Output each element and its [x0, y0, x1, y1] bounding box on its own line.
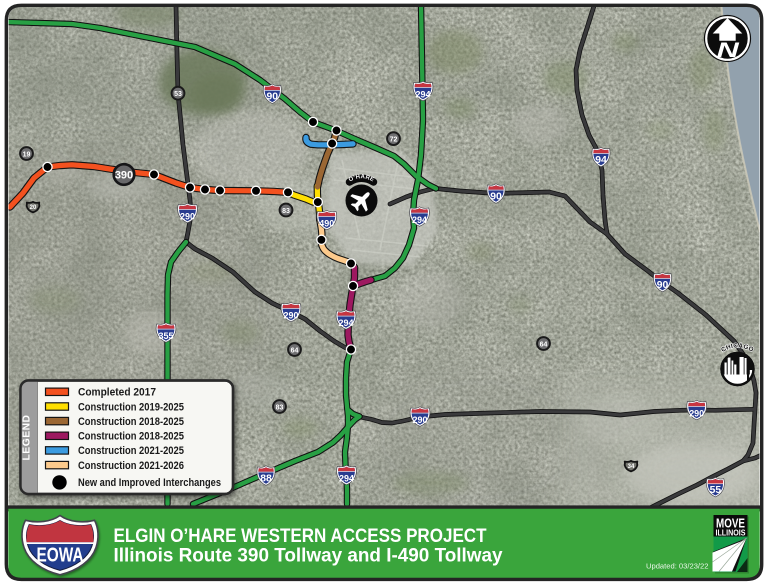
- svg-text:290: 290: [284, 309, 299, 320]
- svg-text:90: 90: [657, 280, 669, 291]
- svg-text:ILLINOIS: ILLINOIS: [716, 527, 746, 537]
- svg-text:90: 90: [490, 191, 502, 202]
- svg-text:294: 294: [416, 88, 432, 99]
- svg-text:88: 88: [260, 473, 272, 484]
- svg-text:New and Improved Interchanges: New and Improved Interchanges: [78, 477, 221, 489]
- svg-text:83: 83: [282, 208, 290, 215]
- svg-text:294: 294: [339, 472, 355, 483]
- svg-text:ELGIN O’HARE WESTERN ACCESS PR: ELGIN O’HARE WESTERN ACCESS PROJECT: [114, 526, 487, 547]
- svg-text:355: 355: [159, 330, 174, 341]
- svg-text:64: 64: [291, 347, 299, 354]
- svg-text:Completed 2017: Completed 2017: [78, 387, 156, 399]
- svg-text:290: 290: [180, 210, 195, 221]
- svg-text:LEGEND: LEGEND: [22, 415, 33, 461]
- svg-text:19: 19: [23, 151, 31, 158]
- svg-text:290: 290: [689, 407, 704, 418]
- svg-text:94: 94: [595, 155, 607, 166]
- svg-text:83: 83: [276, 404, 284, 411]
- svg-text:490: 490: [319, 217, 334, 228]
- svg-text:Construction 2021-2026: Construction 2021-2026: [78, 460, 184, 472]
- svg-text:294: 294: [412, 214, 428, 225]
- svg-text:290: 290: [413, 414, 428, 425]
- svg-text:N: N: [717, 39, 740, 62]
- svg-text:Updated: 03/23/22: Updated: 03/23/22: [646, 562, 709, 571]
- svg-text:390: 390: [115, 170, 133, 182]
- svg-text:53: 53: [174, 91, 182, 98]
- svg-text:294: 294: [339, 317, 355, 328]
- svg-text:Illinois Route 390 Tollway and: Illinois Route 390 Tollway and I-490 Tol…: [114, 546, 503, 567]
- svg-text:Construction 2018-2025: Construction 2018-2025: [78, 416, 184, 428]
- svg-text:Construction 2021-2025: Construction 2021-2025: [78, 445, 184, 457]
- svg-text:20: 20: [30, 205, 37, 211]
- svg-text:72: 72: [390, 136, 398, 143]
- svg-text:64: 64: [540, 341, 548, 348]
- svg-text:34: 34: [628, 464, 635, 470]
- svg-text:Construction 2018-2025: Construction 2018-2025: [78, 431, 184, 443]
- svg-text:Construction 2019-2025: Construction 2019-2025: [78, 401, 184, 413]
- svg-text:EOWA: EOWA: [37, 545, 84, 567]
- svg-text:55: 55: [710, 485, 722, 496]
- svg-text:90: 90: [267, 92, 279, 103]
